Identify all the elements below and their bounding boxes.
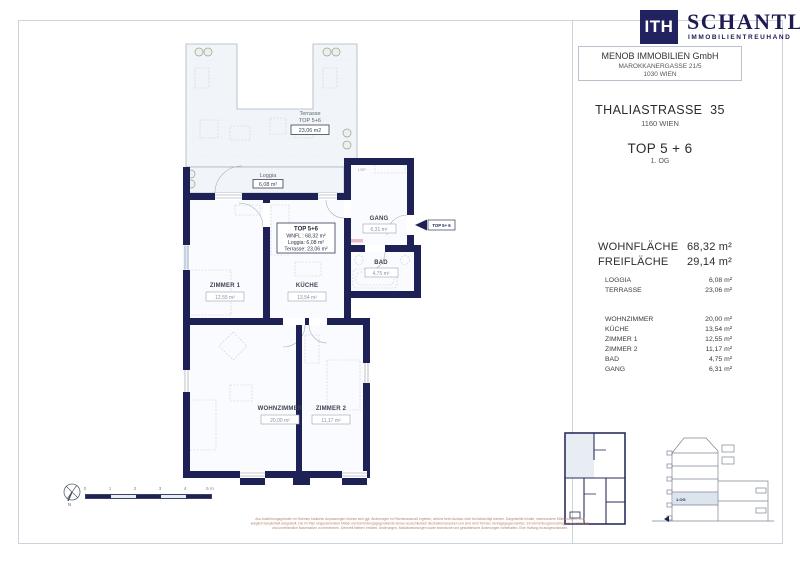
property-floor: 1. OG [578, 158, 742, 165]
ith-logo: ITH [640, 10, 678, 44]
room-area-zimmer1: 12,55 m² [215, 295, 235, 301]
terrace-unit-label: TOP 5+6 [299, 118, 321, 124]
plant-icon [343, 129, 351, 137]
agency-address: MAROKKANERGASSE 21/5 [579, 63, 741, 71]
area-value: 20,00 m² [705, 315, 732, 325]
area-value: 4,75 m² [709, 355, 732, 365]
area-label: WOHNFLÄCHE [598, 240, 678, 255]
room-label-wohnzimmer: WOHNZIMMER [258, 406, 303, 412]
area-label: WOHNZIMMER [605, 315, 653, 325]
scale-tick: 1 [109, 486, 112, 491]
area-row: WOHNZIMMER 20,00 m² [598, 315, 732, 325]
scale-tick: 3 [159, 486, 162, 491]
plant-icon [332, 48, 340, 56]
plant-icon [343, 141, 351, 149]
disclaimer: Aus Ausführungsgründen im Rahmen baulich… [96, 517, 745, 531]
plant-icon [195, 48, 203, 56]
entry-label: TOP 5+ 6 [432, 223, 451, 228]
property-city: 1160 WIEN [578, 119, 742, 128]
area-row: ZIMMER 2 11,17 m² [598, 345, 732, 355]
area-label: LOGGIA [605, 276, 631, 286]
expose-page: ITH SCHANTL IMMOBILIENTREUHAND MENOB IMM… [0, 0, 800, 566]
area-label: KÜCHE [605, 325, 629, 335]
disclaimer-line: und unverbindlich Naturmaßen zu entnehme… [96, 526, 745, 531]
agency-city: 1030 WIEN [579, 71, 741, 79]
area-label: ZIMMER 2 [605, 345, 637, 355]
area-summary-rooms: WOHNZIMMER 20,00 m² KÜCHE 13,54 m² ZIMME… [598, 315, 732, 375]
area-label: TERRASSE [605, 286, 642, 296]
entry-marker: TOP 5+ 6 [415, 220, 455, 231]
brand-tagline: IMMOBILIENTREUHAND [688, 34, 791, 41]
area-row-wohnflaeche: WOHNFLÄCHE 68,32 m² [598, 240, 732, 255]
area-summary-outdoor: LOGGIA 6,08 m² TERRASSE 23,06 m² [598, 276, 732, 296]
room-label-gang: GANG [370, 216, 389, 222]
scale-tick: 4 [184, 486, 187, 491]
property-title-block: THALIASTRASSE 35 1160 WIEN TOP 5 + 6 1. … [578, 103, 742, 165]
plant-icon [204, 48, 212, 56]
room-label-bad: BAD [374, 260, 388, 266]
mini-plan-highlight [566, 434, 594, 478]
floor-plan: Terrasse TOP 5+6 23,06 m2 Loggia 6,08 m² [175, 40, 465, 490]
area-row-loggia: LOGGIA 6,08 m² [598, 276, 732, 286]
property-unit: TOP 5 + 6 [578, 141, 742, 156]
area-label: ZIMMER 1 [605, 335, 637, 345]
mini-building-section: 1.OG [650, 433, 776, 528]
terrace-label: Terrasse [299, 111, 320, 117]
room-label-zimmer1: ZIMMER 1 [210, 283, 241, 289]
area-value: 23,06 m² [705, 286, 732, 296]
area-value: 13,54 m² [705, 325, 732, 335]
room-area-wohnzimmer: 20,00 m² [270, 418, 290, 424]
info-box-loggia: Loggia: 6,08 m² [288, 240, 324, 246]
info-box-terrace: Terrasse: 23,06 m² [284, 247, 328, 253]
area-row-freiflaeche: FREIFLÄCHE 29,14 m² [598, 255, 732, 270]
scale-tick: 2 [134, 486, 137, 491]
area-label: GANG [605, 365, 625, 375]
mini-section-floor-label: 1.OG [676, 497, 686, 502]
terrace-area-value: 23,06 m2 [299, 128, 321, 134]
loggia-area-value: 6,08 m² [259, 182, 277, 188]
scale-bar: 0 1 2 3 4 5 m [85, 486, 217, 502]
agency-name: MENOB IMMOBILIEN GmbH [579, 51, 741, 61]
plan-info-box: TOP 5+6 WNFL : 68,32 m² Loggia: 6,08 m² … [277, 223, 335, 253]
area-row: GANG 6,31 m² [598, 365, 732, 375]
room-label-zimmer2: ZIMMER 2 [316, 406, 347, 412]
compass-icon: N [59, 481, 85, 507]
room-label-kueche: KÜCHE [296, 282, 318, 289]
area-label: BAD [605, 355, 619, 365]
closet-label: LRP [358, 167, 366, 172]
info-box-wnfl: WNFL : 68,32 m² [286, 234, 326, 240]
scale-tick: 0 [84, 486, 87, 491]
terrace-area: Terrasse TOP 5+6 23,06 m2 [186, 44, 357, 167]
area-value: 11,17 m² [706, 345, 732, 355]
area-row: BAD 4,75 m² [598, 355, 732, 365]
mini-floor-plan [562, 430, 628, 527]
area-label: FREIFLÄCHE [598, 255, 668, 270]
plant-icon [323, 48, 331, 56]
area-row-terrasse: TERRASSE 23,06 m² [598, 286, 732, 296]
radiator-accent [351, 239, 363, 243]
loggia-area: Loggia 6,08 m² [186, 167, 344, 193]
agency-box: MENOB IMMOBILIEN GmbH MAROKKANERGASSE 21… [578, 46, 742, 81]
property-street: THALIASTRASSE 35 [578, 103, 742, 117]
brand-name: SCHANTL [687, 9, 800, 35]
area-row: KÜCHE 13,54 m² [598, 325, 732, 335]
scale-bar-segments [85, 494, 212, 499]
info-box-title: TOP 5+6 [294, 227, 319, 233]
area-value: 12,55 m² [705, 335, 732, 345]
room-area-kueche: 13,54 m² [297, 295, 317, 301]
room-area-bad: 4,75 m² [373, 271, 390, 277]
scale-tick: 5 m [206, 486, 214, 491]
area-value: 6,08 m² [709, 276, 732, 286]
area-value: 68,32 m² [687, 240, 732, 255]
area-summary-primary: WOHNFLÄCHE 68,32 m² FREIFLÄCHE 29,14 m² [598, 240, 732, 270]
loggia-label: Loggia [260, 173, 277, 179]
area-value: 6,31 m² [709, 365, 732, 375]
compass-north-label: N [68, 502, 71, 507]
room-area-gang: 6,31 m² [371, 227, 388, 233]
room-area-zimmer2: 11,17 m² [321, 418, 341, 424]
ith-logo-text: ITH [645, 17, 674, 37]
area-value: 29,14 m² [687, 255, 732, 270]
area-row: ZIMMER 1 12,55 m² [598, 335, 732, 345]
entry-arrow-icon [415, 220, 427, 231]
